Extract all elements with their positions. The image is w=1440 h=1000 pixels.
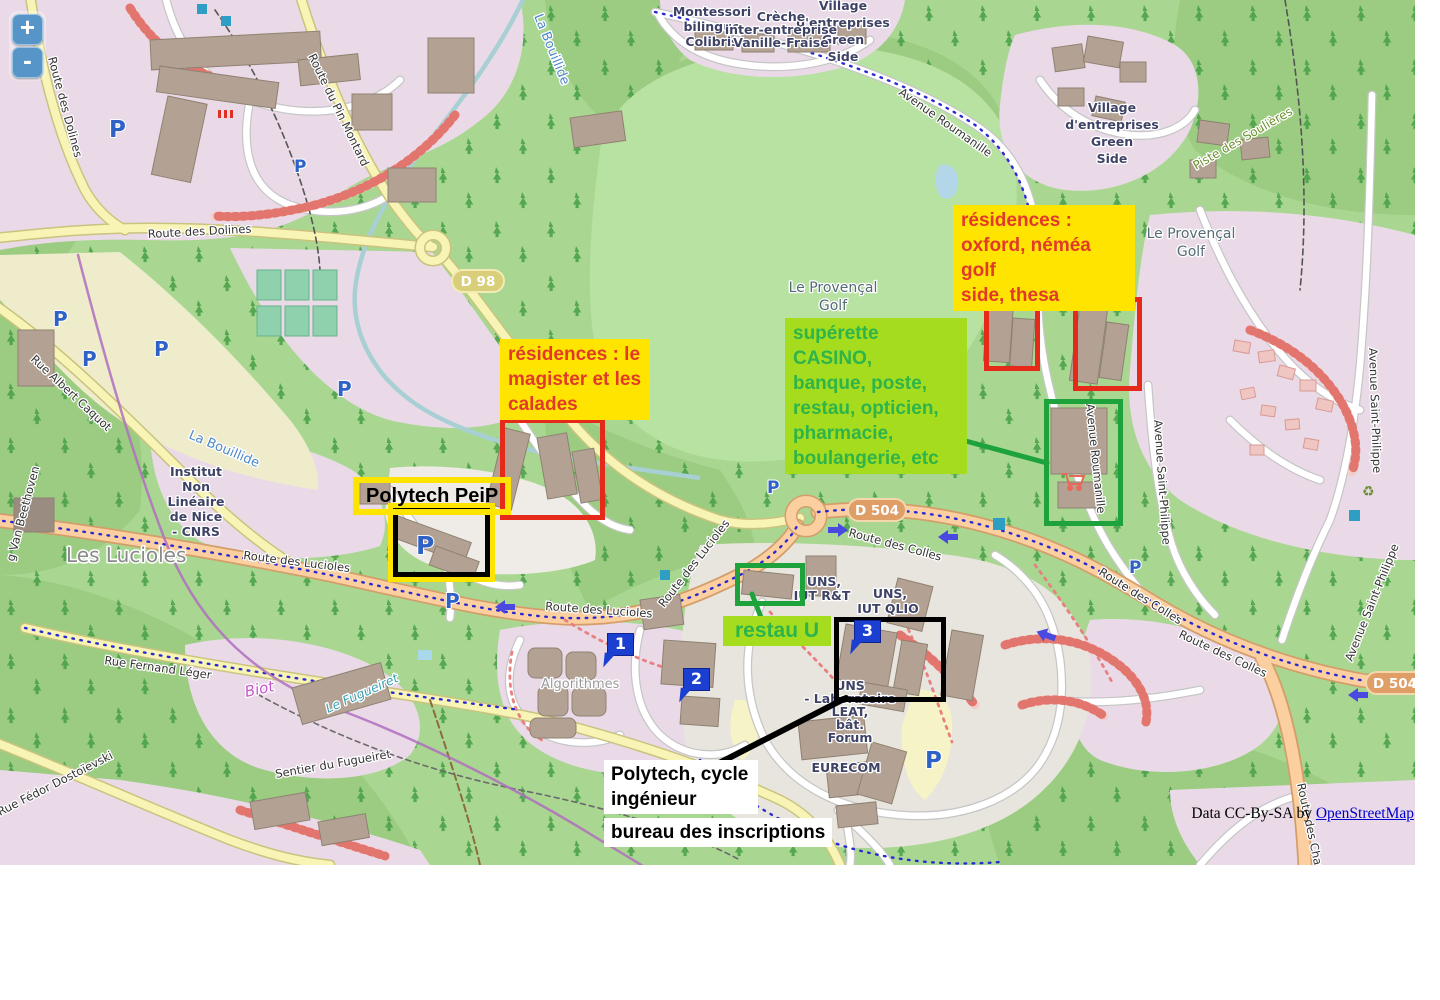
svg-text:Golf: Golf xyxy=(1177,244,1206,260)
svg-text:- CNRS: - CNRS xyxy=(172,524,220,539)
annotation-residences-magister: résidences : le magister et les calades xyxy=(500,339,650,420)
poi-label-algorithmes: Algorithmes xyxy=(541,677,620,692)
annotation-polytech-peip: Polytech PeiP xyxy=(353,477,511,515)
svg-text:Village: Village xyxy=(819,0,867,13)
svg-text:UNS,: UNS, xyxy=(807,574,841,589)
parking-icon: P xyxy=(154,337,169,361)
zoom-in-button[interactable]: + xyxy=(12,14,43,45)
green-rectangle-restau-u xyxy=(735,563,805,606)
road-ref-badge: D 504 xyxy=(1373,676,1415,692)
svg-text:Vanille-Fraise: Vanille-Fraise xyxy=(733,35,828,50)
svg-text:UNS,: UNS, xyxy=(873,586,907,601)
road-ref-badge: D 98 xyxy=(461,274,496,290)
svg-text:Golf: Golf xyxy=(819,298,848,314)
annotation-polytech-cycle: Polytech, cycle ingénieur xyxy=(604,760,758,814)
svg-text:Side: Side xyxy=(1097,151,1128,166)
annotation-residences-oxford: résidences : oxford, néméa golf side, th… xyxy=(953,205,1135,311)
attribution-text: Data CC-By-SA by xyxy=(1191,805,1315,822)
marker-1: 1 xyxy=(607,633,634,656)
openstreetmap-link[interactable]: OpenStreetMap xyxy=(1316,805,1414,822)
attribution: Data CC-By-SA by OpenStreetMap xyxy=(1186,805,1414,823)
parking-icon: P xyxy=(82,347,97,371)
parking-icon: P xyxy=(109,117,126,143)
svg-text:d'entreprises: d'entreprises xyxy=(1065,117,1159,132)
parking-icon: P xyxy=(294,157,306,177)
svg-text:Le Provençal: Le Provençal xyxy=(1147,226,1236,242)
place-label: Les Lucioles xyxy=(66,543,186,567)
svg-text:Montessori: Montessori xyxy=(673,4,751,19)
parking-icon: P xyxy=(1129,558,1141,578)
svg-text:Side: Side xyxy=(828,49,859,64)
parking-icon: P xyxy=(53,307,68,331)
svg-text:de Nice: de Nice xyxy=(170,509,222,524)
red-rectangle-magister xyxy=(500,418,605,520)
svg-text:Green: Green xyxy=(1091,134,1133,149)
svg-text:Le Provençal: Le Provençal xyxy=(789,280,878,296)
parking-icon: P xyxy=(925,748,942,774)
svg-text:Village: Village xyxy=(1088,100,1136,115)
black-rectangle-leat xyxy=(834,617,946,702)
svg-text:IUT QLIO: IUT QLIO xyxy=(857,601,919,616)
recycling-icon: ♻ xyxy=(1362,483,1375,499)
parking-icon: P xyxy=(767,478,779,498)
parking-icon: P xyxy=(337,377,352,401)
road-ref-badge: D 504 xyxy=(855,503,899,519)
annotation-superette: supérette CASINO, banque, poste, restau,… xyxy=(785,318,967,474)
marker-2: 2 xyxy=(683,668,710,691)
annotation-restau-u: restau U xyxy=(723,616,831,646)
green-rectangle-superette xyxy=(1044,399,1123,526)
svg-text:Forum: Forum xyxy=(828,730,873,745)
screenshot: P P P P P P P P P P P ♻ D 98 D 504 D 5 xyxy=(0,0,1440,1000)
svg-text:Institut: Institut xyxy=(170,464,222,479)
svg-text:Non: Non xyxy=(182,479,210,494)
parking-icon: P xyxy=(445,589,460,613)
black-yellow-rectangle-peip xyxy=(393,508,490,577)
poi-label-eurecom: EURECOM xyxy=(811,760,880,775)
marker-3: 3 xyxy=(854,620,881,643)
map-drawing: P P P P P P P P P P P ♻ D 98 D 504 D 5 xyxy=(0,0,1415,865)
zoom-out-button[interactable]: - xyxy=(12,47,43,78)
zoom-control: + - xyxy=(9,11,46,81)
svg-text:Linéaire: Linéaire xyxy=(168,494,225,509)
annotation-bureau-inscriptions: bureau des inscriptions xyxy=(604,818,832,847)
poi-label-institut: Institut Non Linéaire de Nice - CNRS xyxy=(168,464,225,539)
map-canvas[interactable]: P P P P P P P P P P P ♻ D 98 D 504 D 5 xyxy=(0,0,1415,865)
